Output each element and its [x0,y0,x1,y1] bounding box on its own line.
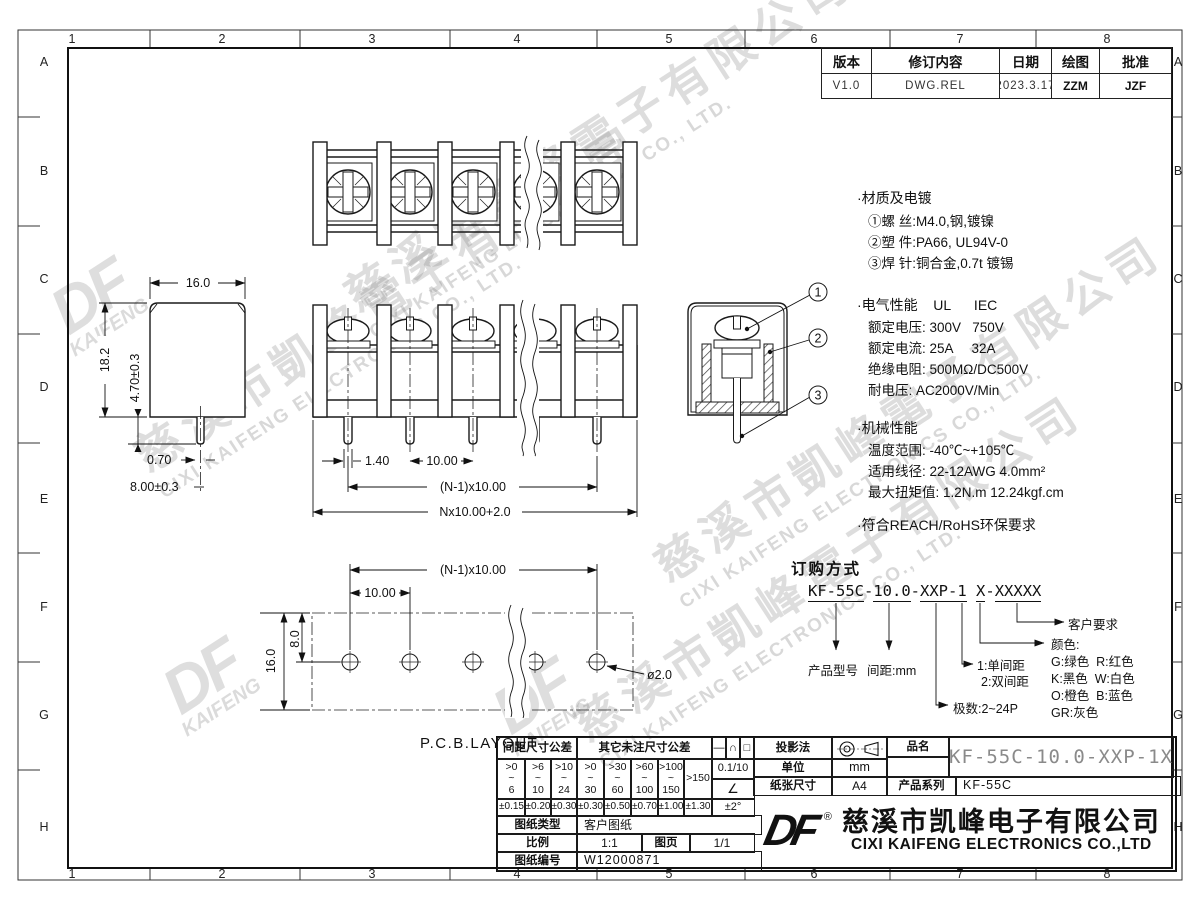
drawing-number-label: 图纸编号 [497,851,578,871]
ordering-label-poles: 极数:2~24P [953,698,1018,717]
revision-col-draw: 绘图 [1051,47,1100,74]
watermark-cn-text: 慈溪市凱峰電子有限公司 [120,106,654,485]
company-logo: DF [760,809,818,853]
revision-col-date: 日期 [999,47,1052,74]
unit-value: mm [831,758,888,778]
dim-pin-length: 4.70±0.3 [128,354,142,403]
dim-front-span: (N-1)x10.00 [440,480,506,494]
dim-front-pitch: 10.00 [426,454,457,468]
ordering-code: KF-55C-10.0-XXP-1 X-XXXXX [808,582,1041,600]
watermark: 慈溪市凱峰電子有限公司 CIXI KAIFENG ELECTRONICS CO.… [120,106,666,503]
watermark-logo-sub: KAIFENG [178,674,266,742]
ordering-color-option: GR:灰色 [1051,702,1098,721]
note-mechanical-line: 最大扭矩值: 1.2N.m 12.24kgf.cm [868,481,1064,501]
registered-mark: ® [824,811,832,823]
grid-col-label: 1 [64,867,80,881]
watermark: 慈溪市凱峰電子有限公司 CIXI KAIFENG ELECTRONICS CO.… [330,0,876,344]
grid-row-label: B [1170,164,1186,178]
symbol-tolerance-1: 0.1/10 [711,758,755,780]
page-label: 图页 [641,833,691,853]
revision-draw: ZZM [1051,73,1100,99]
product-series-label: 产品系列 [886,776,957,796]
grid-row-label: C [1170,272,1186,286]
grid-row-label: G [36,708,52,722]
note-electrical-line: 绝缘电阻: 500MΩ/DC500V [868,358,1028,378]
tol-range: >6 ~ 10 [524,758,552,800]
company-block: DF ® 慈溪市凯峰电子有限公司 CIXI KAIFENG ELECTRONIC… [753,794,1173,868]
watermark-logo-text: DF [485,654,578,739]
dim-pin-width: 0.70 [147,453,171,467]
watermark-logo-text: DF [43,254,136,339]
view-top [313,136,637,250]
note-electrical-line: 额定电压: 300V 750V [868,316,1004,336]
grid-col-label: 1 [64,32,80,46]
note-electrical-title: ·电气性能 UL IEC [857,295,997,315]
watermark-logo-text: DF [155,634,248,719]
dim-pcb-height: 16.0 [264,649,278,673]
paper-size-label: 纸张尺寸 [753,776,833,796]
grid-row-label: G [1170,708,1186,722]
note-mechanical-title: ·机械性能 [857,418,918,438]
revision-col-approve: 批准 [1099,47,1172,74]
projection-symbol [831,737,888,760]
grid-row-label: F [1170,600,1186,614]
ordering-sep: - [864,582,873,600]
watermark-logo: DF KAIFENG [150,631,266,742]
dim-front-pin: 1.40 [365,454,389,468]
ordering-sep: - [985,582,994,600]
product-series-value: KF-55C [955,776,1181,796]
watermark-cn-text: 慈溪市凱峰電子有限公司 [330,0,864,325]
paper-size-value: A4 [831,776,888,796]
tol-range: >30 ~ 60 [603,758,632,800]
dim-pcb-hole: ø2.0 [647,668,672,682]
tol-range: >0 ~ 30 [576,758,605,800]
tol-spacing-header: 间距尺寸公差 [497,737,578,760]
callout-1: 1 [815,286,822,300]
dim-pin-position: 8.00±0.3 [130,480,179,494]
revision-col-version: 版本 [821,47,872,74]
grid-row-label: A [36,55,52,69]
company-name-en: CIXI KAIFENG ELECTRONICS CO.,LTD [851,836,1152,854]
grid-col-label: 3 [364,32,380,46]
ordering-seg-series: KF-55C [808,582,864,602]
view-pcb: (N-1)x10.00 10.00 16.0 8.0 ø2.0 P.C.B. [260,563,672,752]
ordering-seg-pitch: 10.0 [873,582,910,602]
ordering-label-customer: 客户要求 [1068,614,1118,633]
grid-row-label: H [36,820,52,834]
part-name-spacer [886,756,950,778]
note-material-title: ·材质及电镀 [857,188,932,208]
revision-date: 2023.3.17 [999,73,1052,99]
grid-col-label: 2 [214,32,230,46]
grid-row-label: E [36,492,52,506]
ordering-label-double: 2:双间距 [981,671,1029,690]
sheet-type-value: 客户图纸 [576,815,762,835]
company-name-cn: 慈溪市凯峰电子有限公司 [842,808,1161,836]
projection-label: 投影法 [753,737,833,760]
grid-col-label: 4 [509,32,525,46]
grid-col-label: 2 [214,867,230,881]
grid-col-label: 3 [364,867,380,881]
ordering-label-pitch: 间距:mm [867,660,916,679]
grid-row-label: E [1170,492,1186,506]
watermark-logo: DF KAIFENG [38,251,154,362]
view-side: 16.0 18.2 4.70±0.3 0.70 8.00±0.3 [98,276,245,494]
tol-range: >60 ~ 100 [630,758,659,800]
watermark-en-text: CIXI KAIFENG ELECTRONICS CO., LTD. [366,2,876,344]
note-electrical-line: 额定电流: 25A 32A [868,337,996,357]
watermark-logo-sub: KAIFENG [66,294,154,362]
ordering-seg-color: X [976,582,985,602]
ordering-title: 订购方式 [791,557,861,579]
grid-row-label: B [36,164,52,178]
grid-col-label: 7 [952,32,968,46]
grid-col-label: 8 [1099,32,1115,46]
revision-version: V1.0 [821,73,872,99]
scale-value: 1:1 [576,833,643,853]
note-mechanical-line: 适用线径: 22-12AWG 4.0mm² [868,460,1045,480]
engineering-drawing-sheet: 慈溪市凱峰電子有限公司 CIXI KAIFENG ELECTRONICS CO.… [0,0,1200,910]
sheet-type-label: 图纸类型 [497,815,578,835]
note-material-line: ③焊 针:铜合金,0.7t 镀锡 [868,252,1014,272]
ordering-seg-custom: XXXXX [995,582,1042,602]
ordering-sep [967,582,976,600]
grid-row-label: D [36,380,52,394]
ordering-seg-poles: XXP-1 [920,582,967,602]
symbol-angle: ∠ [711,778,755,800]
grid-row-label: D [1170,380,1186,394]
page-value: 1/1 [689,833,755,853]
callout-3: 3 [815,389,822,403]
dim-side-height: 18.2 [98,348,112,372]
grid-col-label: 5 [661,32,677,46]
dim-pcb-pitch: 10.00 [364,586,395,600]
grid-row-label: F [36,600,52,614]
note-compliance: ·符合REACH/RoHS环保要求 [857,515,1036,535]
part-name-value: KF-55C-10.0-XXP-1X [948,737,1174,778]
ordering-arrows [836,603,1064,705]
projection-method-icon [835,740,885,758]
revision-content: DWG.REL [871,73,1000,99]
dim-pcb-span: (N-1)x10.00 [440,563,506,577]
tol-range: >0 ~ 6 [497,758,526,800]
watermark: 慈溪市凱峰電子有限公司 CIXI KAIFENG ELECTRONICS CO.… [640,216,1186,613]
watermark-en-text: CIXI KAIFENG ELECTRONICS CO., LTD. [156,162,666,504]
tol-range: >100 ~ 150 [657,758,685,800]
tol-range: >150 [683,758,713,800]
ordering-label-model: 产品型号 [808,660,858,679]
drawing-number-value: W12000871 [576,851,762,871]
revision-col-content: 修订内容 [871,47,1000,74]
note-electrical-line: 耐电压: AC2000V/Min [868,379,999,399]
grid-row-label: A [1170,55,1186,69]
grid-col-label: 6 [806,32,822,46]
revision-approve: JZF [1099,73,1172,99]
note-material-line: ②塑 件:PA66, UL94V-0 [868,231,1008,251]
unit-label: 单位 [753,758,833,778]
note-material-line: ①螺 丝:M4.0,钢,镀镍 [868,210,994,230]
grid-row-label: C [36,272,52,286]
tol-other-header: 其它未注尺寸公差 [576,737,713,760]
view-section: 1 2 3 [688,283,827,443]
part-name-label: 品名 [886,737,950,758]
revision-table: 版本 修订内容 日期 绘图 批准 V1.0 DWG.REL 2023.3.17 … [822,48,1172,99]
callout-2: 2 [815,332,822,346]
tol-range: >10 ~ 24 [550,758,578,800]
note-mechanical-line: 温度范围: -40℃~+105℃ [868,439,1014,459]
ordering-sep: - [911,582,920,600]
scale-label: 比例 [497,833,578,853]
dim-side-width: 16.0 [186,276,210,290]
watermark-cn-text: 慈溪市凱峰電子有限公司 [640,216,1174,595]
phillips-cross-icon [328,172,617,212]
dim-pcb-offset: 8.0 [288,630,302,647]
dim-front-total: Nx10.00+2.0 [439,505,510,519]
view-front: 1.40 10.00 (N-1)x10.00 Nx10.00+2.0 [313,300,637,519]
